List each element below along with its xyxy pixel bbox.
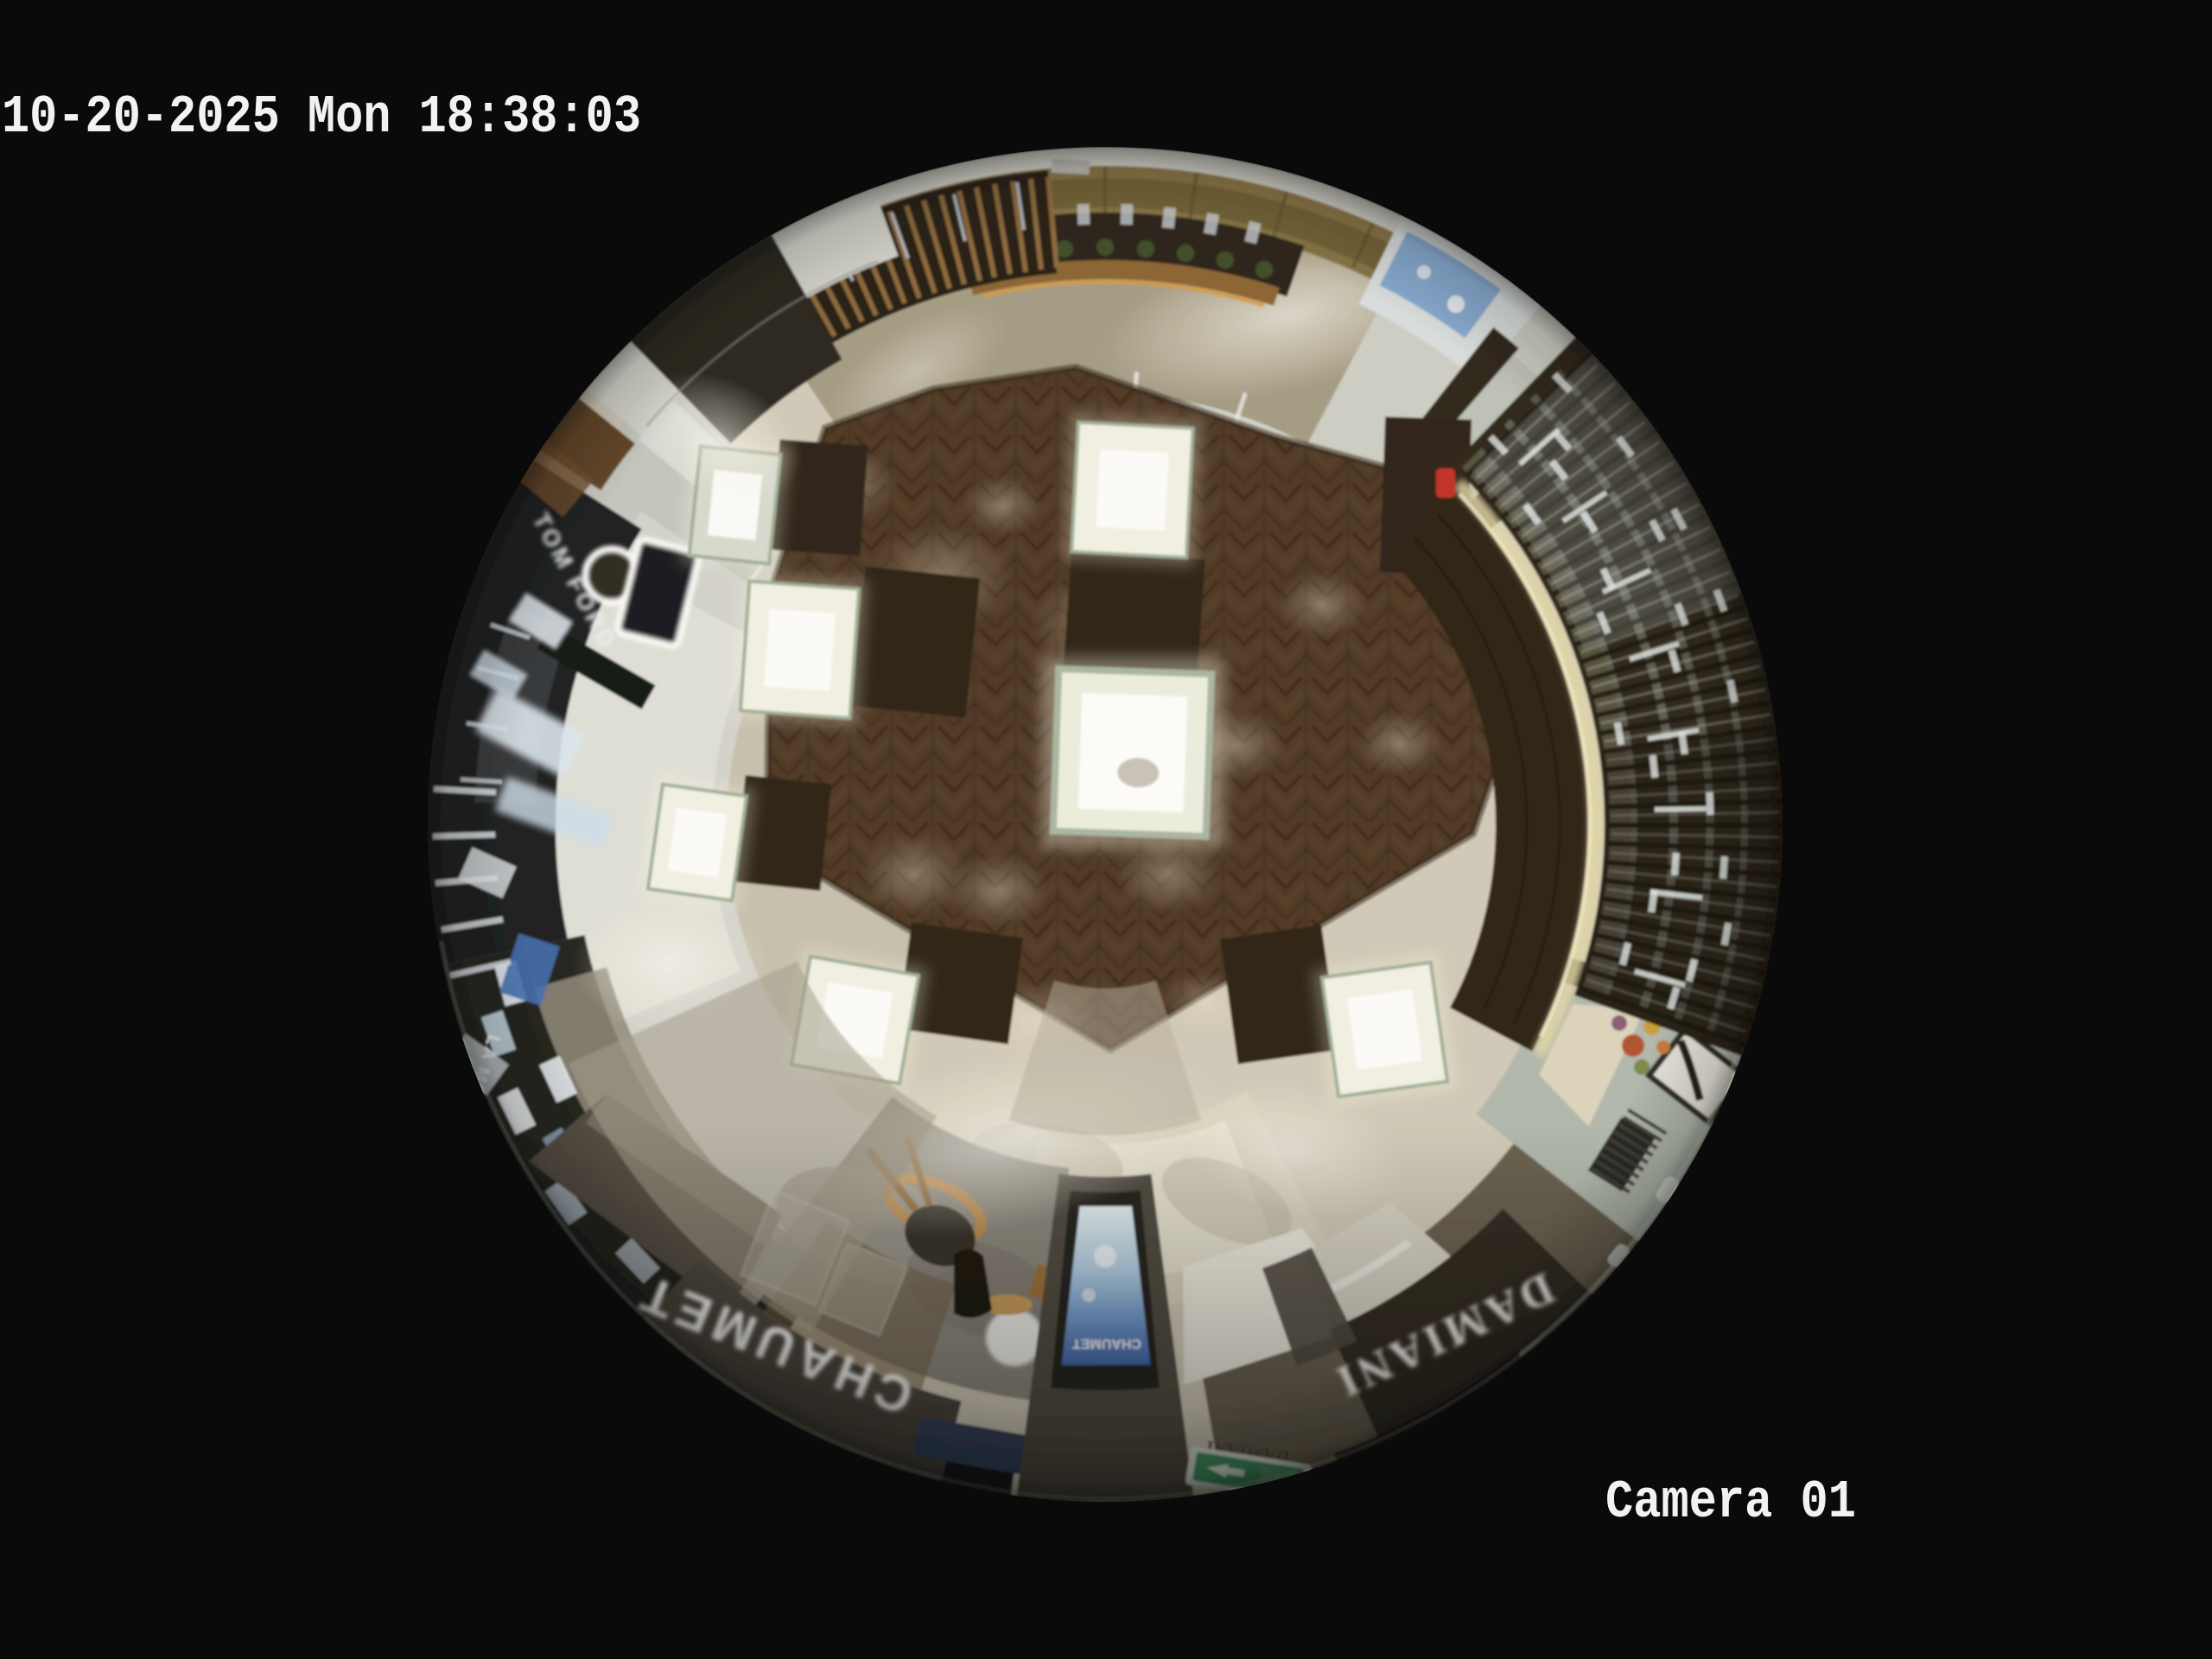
svg-text:10-20-2025 Mon 18:38:03: 10-20-2025 Mon 18:38:03 — [2, 88, 641, 148]
svg-text:Camera 01: Camera 01 — [1605, 1473, 1856, 1533]
